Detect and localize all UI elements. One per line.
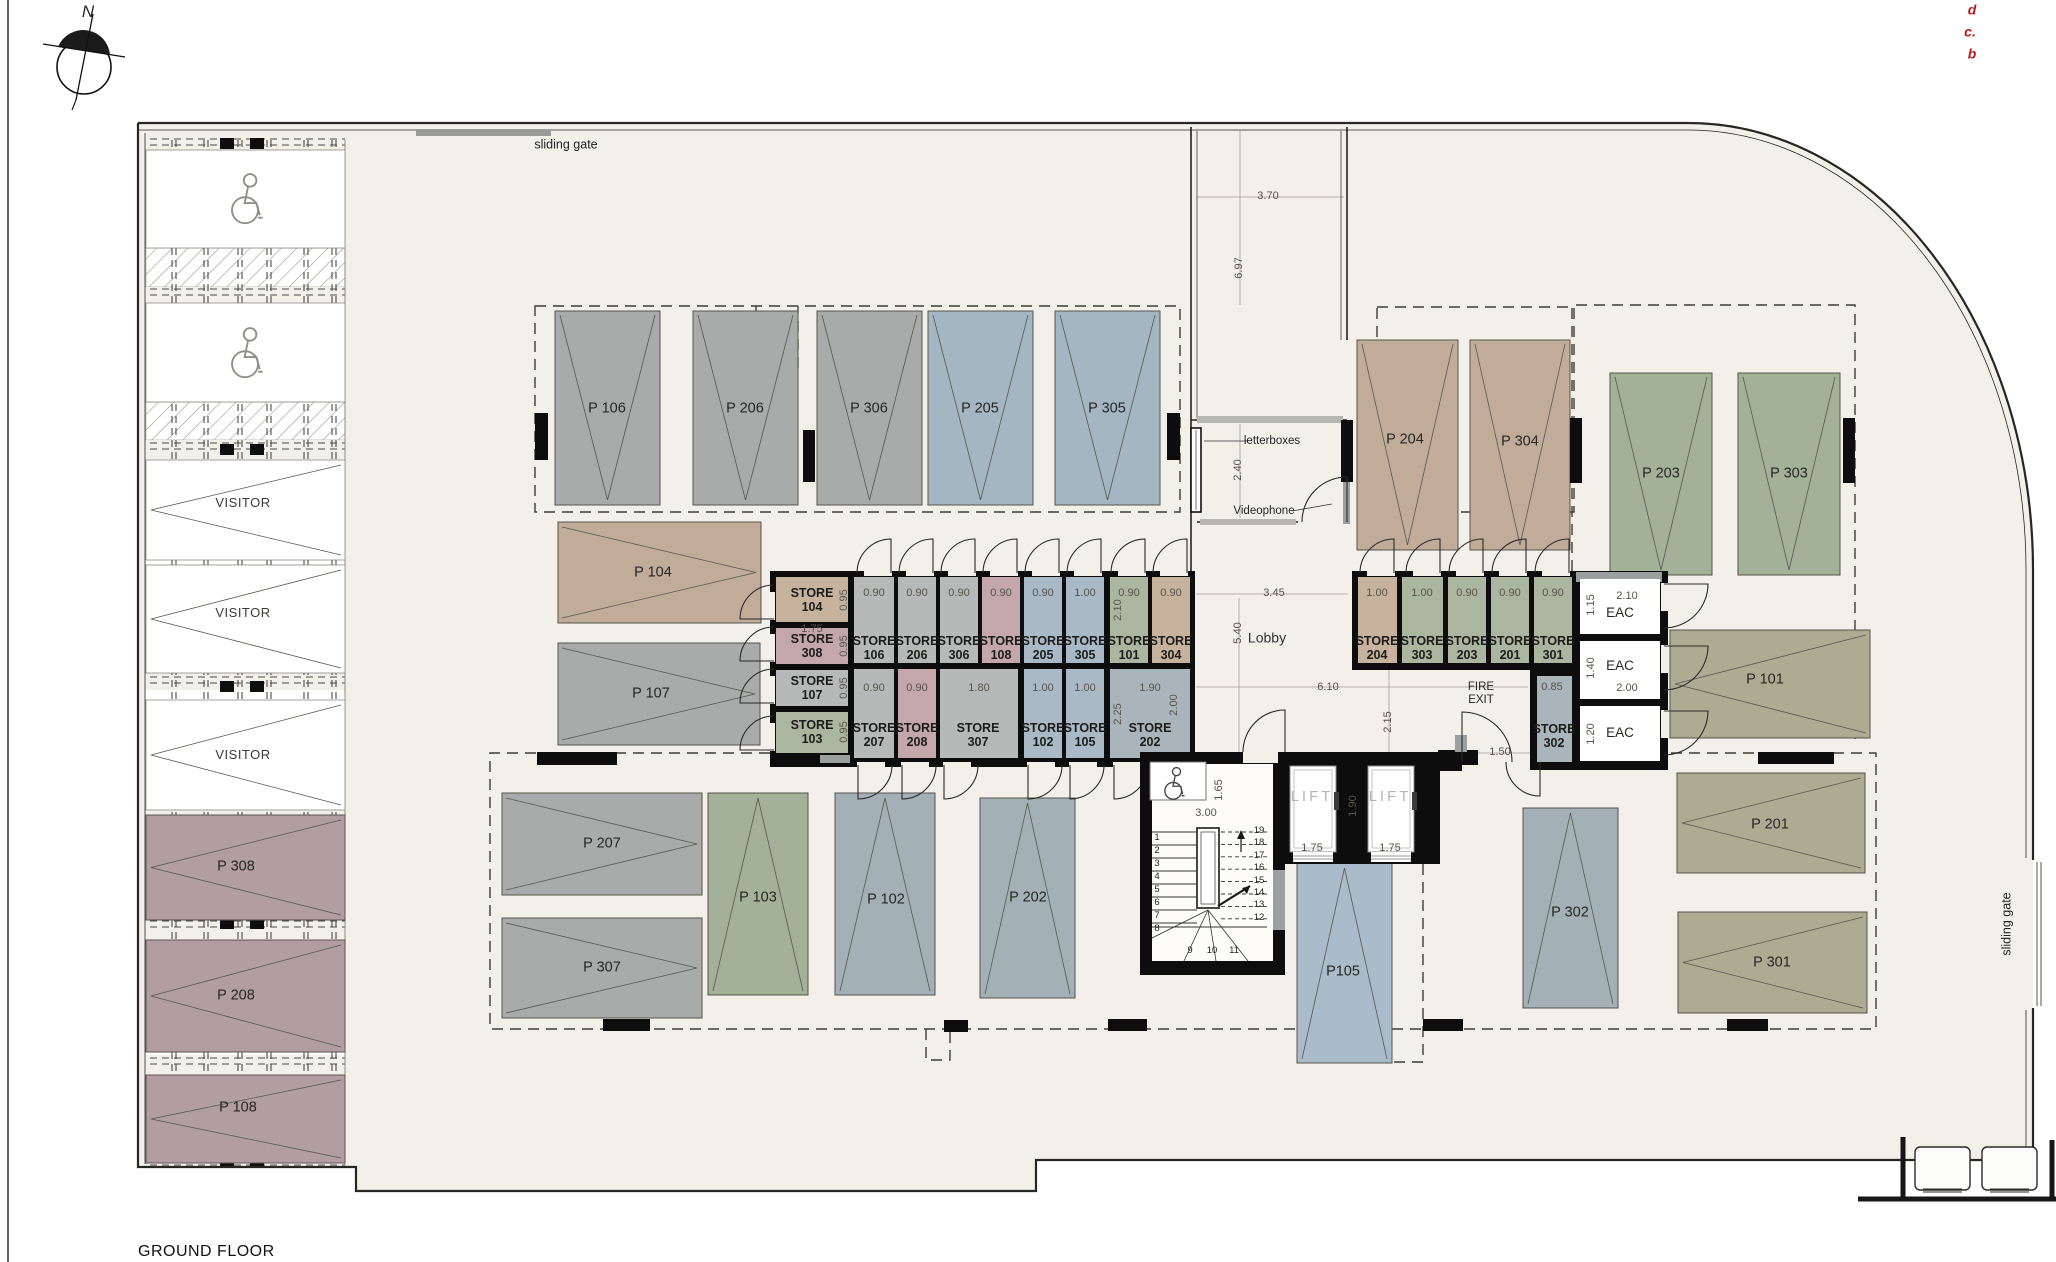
store-word: STORE bbox=[791, 586, 834, 600]
store-label-s301: STORE301 bbox=[1532, 634, 1575, 662]
eac-label-1: EAC bbox=[1606, 606, 1634, 620]
label-dims-c370: 3.70 bbox=[1257, 191, 1278, 203]
store-label-s202: STORE202 bbox=[1129, 721, 1172, 749]
label-dims-l1: 0.95 bbox=[839, 589, 851, 610]
parking-label-p204: P 204 bbox=[1386, 432, 1424, 447]
label-dims-t1: 0.90 bbox=[863, 588, 884, 600]
parking-label-p101: P 101 bbox=[1746, 672, 1784, 687]
store-word: STORE bbox=[896, 634, 939, 648]
label-dims-e_w2: 2.00 bbox=[1616, 683, 1637, 695]
label-dims-r4: 0.90 bbox=[1499, 588, 1520, 600]
label-dims-b6: 1.90 bbox=[1139, 683, 1160, 695]
store-number: 205 bbox=[1022, 648, 1065, 662]
letterboxes-label: letterboxes bbox=[1244, 435, 1300, 447]
stair-number-5: 5 bbox=[1154, 885, 1159, 895]
label-dims-r1: 1.00 bbox=[1366, 588, 1387, 600]
label-dims-v210: 2.10 bbox=[1113, 599, 1125, 620]
lift-label-2: LIFT bbox=[1369, 789, 1412, 805]
label-dims-c085: 0.85 bbox=[1541, 682, 1562, 694]
parking-label-p106: P 106 bbox=[588, 401, 626, 416]
store-number: 107 bbox=[791, 688, 834, 702]
store-word: STORE bbox=[896, 721, 939, 735]
store-number: 202 bbox=[1129, 735, 1172, 749]
label-dims-t8: 0.90 bbox=[1160, 588, 1181, 600]
stair-number-17: 17 bbox=[1254, 851, 1265, 861]
store-word: STORE bbox=[853, 721, 896, 735]
stair-number-16: 16 bbox=[1254, 863, 1265, 873]
stair-number-6: 6 bbox=[1154, 898, 1159, 908]
label-dims-c240: 2.40 bbox=[1233, 459, 1245, 480]
drawing-title: GROUND FLOOR bbox=[138, 1244, 275, 1261]
label-dims-lf1: 1.75 bbox=[1301, 843, 1322, 855]
stair-number-2: 2 bbox=[1154, 846, 1159, 856]
store-word: STORE bbox=[1446, 634, 1489, 648]
parking-label-p305: P 305 bbox=[1088, 401, 1126, 416]
store-word: STORE bbox=[938, 634, 981, 648]
stair-number-19: 19 bbox=[1254, 826, 1265, 836]
parking-label-p307: P 307 bbox=[583, 960, 621, 975]
stair-number-3: 3 bbox=[1154, 859, 1159, 869]
label-dims-e_h2: 1.40 bbox=[1586, 657, 1598, 678]
store-label-s206: STORE206 bbox=[896, 634, 939, 662]
store-label-s102: STORE102 bbox=[1022, 721, 1065, 749]
parking-label-p102: P 102 bbox=[867, 892, 905, 907]
store-number: 102 bbox=[1022, 735, 1065, 749]
parking-label-p108: P 108 bbox=[219, 1100, 257, 1115]
parking-label-p203: P 203 bbox=[1642, 466, 1680, 481]
store-number: 204 bbox=[1356, 648, 1399, 662]
store-label-s201: STORE201 bbox=[1489, 634, 1532, 662]
parking-label-p306: P 306 bbox=[850, 401, 888, 416]
stair-number-11: 11 bbox=[1229, 946, 1239, 956]
parking-label-p303: P 303 bbox=[1770, 466, 1808, 481]
store-number: 301 bbox=[1532, 648, 1575, 662]
store-label-s302: STORE302 bbox=[1533, 722, 1576, 750]
store-label-s101: STORE101 bbox=[1108, 634, 1151, 662]
parking-label-p107: P 107 bbox=[632, 686, 670, 701]
store-word: STORE bbox=[1401, 634, 1444, 648]
videophone-label: Videophone bbox=[1233, 505, 1294, 517]
revision-mark-d: d bbox=[1968, 3, 1977, 18]
label-dims-v200: 2.00 bbox=[1169, 694, 1181, 715]
lift-label-1: LIFT bbox=[1291, 789, 1334, 805]
label-dims-l2: 0.95 bbox=[839, 635, 851, 656]
store-number: 105 bbox=[1064, 735, 1107, 749]
label-dims-r5: 0.90 bbox=[1542, 588, 1563, 600]
parking-label-p302: P 302 bbox=[1551, 905, 1589, 920]
stair-number-18: 18 bbox=[1254, 838, 1265, 848]
store-number: 306 bbox=[938, 648, 981, 662]
store-number: 207 bbox=[853, 735, 896, 749]
parking-label-p208: P 208 bbox=[217, 988, 255, 1003]
label-dims-t3: 0.90 bbox=[948, 588, 969, 600]
label-dims-e_w1: 2.10 bbox=[1616, 591, 1637, 603]
store-number: 305 bbox=[1064, 648, 1107, 662]
visitor-label-1: VISITOR bbox=[215, 496, 270, 510]
label-dims-b5: 1.00 bbox=[1074, 683, 1095, 695]
fire-exit-line2: EXIT bbox=[1468, 694, 1494, 706]
label-dims-e_h1: 1.15 bbox=[1586, 594, 1598, 615]
parking-label-p103: P 103 bbox=[739, 890, 777, 905]
label-dims-c610: 6.10 bbox=[1317, 682, 1338, 694]
label-dims-c215: 2.15 bbox=[1383, 711, 1395, 732]
stair-number-8: 8 bbox=[1154, 924, 1159, 934]
parking-label-p304: P 304 bbox=[1501, 434, 1539, 449]
label-dims-t5: 0.90 bbox=[1032, 588, 1053, 600]
lobby-label: Lobby bbox=[1248, 631, 1286, 646]
revision-mark-b: b bbox=[1968, 47, 1977, 62]
stair-number-15: 15 bbox=[1254, 876, 1265, 886]
store-number: 203 bbox=[1446, 648, 1489, 662]
label-dims-e_h3: 1.20 bbox=[1586, 723, 1598, 744]
store-word: STORE bbox=[791, 674, 834, 688]
fire-exit-line1: FIRE bbox=[1468, 681, 1494, 693]
store-word: STORE bbox=[1064, 721, 1107, 735]
stair-number-1: 1 bbox=[1154, 833, 1159, 843]
store-number: 104 bbox=[791, 600, 834, 614]
label-dims-s300: 3.00 bbox=[1195, 808, 1216, 820]
store-word: STORE bbox=[1533, 722, 1576, 736]
label-dims-lf190: 1.90 bbox=[1348, 795, 1360, 816]
store-number: 201 bbox=[1489, 648, 1532, 662]
store-number: 106 bbox=[853, 648, 896, 662]
store-label-s307: STORE307 bbox=[957, 721, 1000, 749]
stair-number-7: 7 bbox=[1154, 911, 1159, 921]
store-label-s106: STORE106 bbox=[853, 634, 896, 662]
stair-number-4: 4 bbox=[1154, 872, 1159, 882]
label-dims-r2: 1.00 bbox=[1411, 588, 1432, 600]
label-dims-t6: 1.00 bbox=[1074, 588, 1095, 600]
label-dims-t7: 0.90 bbox=[1118, 588, 1139, 600]
label-dims-b4: 1.00 bbox=[1032, 683, 1053, 695]
store-label-s308: STORE308 bbox=[791, 632, 834, 660]
stair-number-13: 13 bbox=[1254, 900, 1265, 910]
floor-plan: P 106P 206P 306P 205P 305P 204P 304P 203… bbox=[0, 0, 2056, 1262]
north-label: N bbox=[82, 3, 94, 21]
parking-label-p105: P105 bbox=[1326, 964, 1360, 979]
store-number: 308 bbox=[791, 646, 834, 660]
parking-label-p205: P 205 bbox=[961, 401, 999, 416]
label-dims-b2: 0.90 bbox=[906, 683, 927, 695]
visitor-label-2: VISITOR bbox=[215, 606, 270, 620]
store-label-s306: STORE306 bbox=[938, 634, 981, 662]
stair-number-12: 12 bbox=[1254, 913, 1265, 923]
label-dims-c345: 3.45 bbox=[1263, 588, 1284, 600]
store-word: STORE bbox=[1150, 634, 1193, 648]
store-number: 206 bbox=[896, 648, 939, 662]
store-word: STORE bbox=[957, 721, 1000, 735]
store-label-s304: STORE304 bbox=[1150, 634, 1193, 662]
parking-label-p202: P 202 bbox=[1009, 890, 1047, 905]
parking-label-p301: P 301 bbox=[1753, 955, 1791, 970]
label-dims-c150: 1.50 bbox=[1489, 747, 1510, 759]
parking-label-p308: P 308 bbox=[217, 859, 255, 874]
sliding-gate-label-right: sliding gate bbox=[2000, 892, 2013, 955]
store-word: STORE bbox=[1108, 634, 1151, 648]
store-word: STORE bbox=[1064, 634, 1107, 648]
visitor-label-3: VISITOR bbox=[215, 748, 270, 762]
store-word: STORE bbox=[791, 718, 834, 732]
label-dims-l3: 0.95 bbox=[839, 677, 851, 698]
store-number: 302 bbox=[1533, 736, 1576, 750]
store-number: 108 bbox=[980, 648, 1023, 662]
store-label-s204: STORE204 bbox=[1356, 634, 1399, 662]
parking-label-p207: P 207 bbox=[583, 836, 621, 851]
stair-number-10: 10 bbox=[1207, 946, 1218, 956]
store-word: STORE bbox=[1489, 634, 1532, 648]
store-label-s203: STORE203 bbox=[1446, 634, 1489, 662]
stair-number-9: 9 bbox=[1187, 946, 1192, 956]
store-number: 103 bbox=[791, 732, 834, 746]
floor-plan-labels: P 106P 206P 306P 205P 305P 204P 304P 203… bbox=[0, 0, 2056, 1262]
store-label-s105: STORE105 bbox=[1064, 721, 1107, 749]
label-dims-b1: 0.90 bbox=[863, 683, 884, 695]
label-dims-l175: 1.75 bbox=[801, 624, 822, 636]
sliding-gate-label-top: sliding gate bbox=[534, 138, 597, 151]
label-dims-v225: 2.25 bbox=[1113, 703, 1125, 724]
store-number: 307 bbox=[957, 735, 1000, 749]
stair-number-14: 14 bbox=[1254, 888, 1265, 898]
parking-label-p201: P 201 bbox=[1751, 817, 1789, 832]
store-label-s305: STORE305 bbox=[1064, 634, 1107, 662]
label-dims-c697: 6.97 bbox=[1234, 257, 1246, 278]
store-label-s208: STORE208 bbox=[896, 721, 939, 749]
store-label-s104: STORE104 bbox=[791, 586, 834, 614]
parking-label-p104: P 104 bbox=[634, 565, 672, 580]
label-dims-l4: 0.95 bbox=[839, 721, 851, 742]
store-number: 303 bbox=[1401, 648, 1444, 662]
label-dims-lf2: 1.75 bbox=[1379, 843, 1400, 855]
label-dims-s165: 1.65 bbox=[1214, 779, 1226, 800]
store-label-s107: STORE107 bbox=[791, 674, 834, 702]
label-dims-r3: 0.90 bbox=[1456, 588, 1477, 600]
store-number: 208 bbox=[896, 735, 939, 749]
store-label-s103: STORE103 bbox=[791, 718, 834, 746]
label-dims-b3: 1.80 bbox=[968, 683, 989, 695]
label-dims-t4: 0.90 bbox=[990, 588, 1011, 600]
store-number: 304 bbox=[1150, 648, 1193, 662]
eac-label-3: EAC bbox=[1606, 726, 1634, 740]
label-dims-c540: 5.40 bbox=[1233, 622, 1245, 643]
parking-label-p206: P 206 bbox=[726, 401, 764, 416]
label-dims-t2: 0.90 bbox=[906, 588, 927, 600]
store-word: STORE bbox=[980, 634, 1023, 648]
store-word: STORE bbox=[1129, 721, 1172, 735]
store-word: STORE bbox=[1022, 634, 1065, 648]
store-label-s207: STORE207 bbox=[853, 721, 896, 749]
revision-mark-c: c. bbox=[1964, 25, 1976, 40]
store-label-s303: STORE303 bbox=[1401, 634, 1444, 662]
store-label-s205: STORE205 bbox=[1022, 634, 1065, 662]
store-word: STORE bbox=[853, 634, 896, 648]
store-number: 101 bbox=[1108, 648, 1151, 662]
store-word: STORE bbox=[1532, 634, 1575, 648]
eac-label-2: EAC bbox=[1606, 659, 1634, 673]
store-word: STORE bbox=[1022, 721, 1065, 735]
store-word: STORE bbox=[1356, 634, 1399, 648]
store-label-s108: STORE108 bbox=[980, 634, 1023, 662]
